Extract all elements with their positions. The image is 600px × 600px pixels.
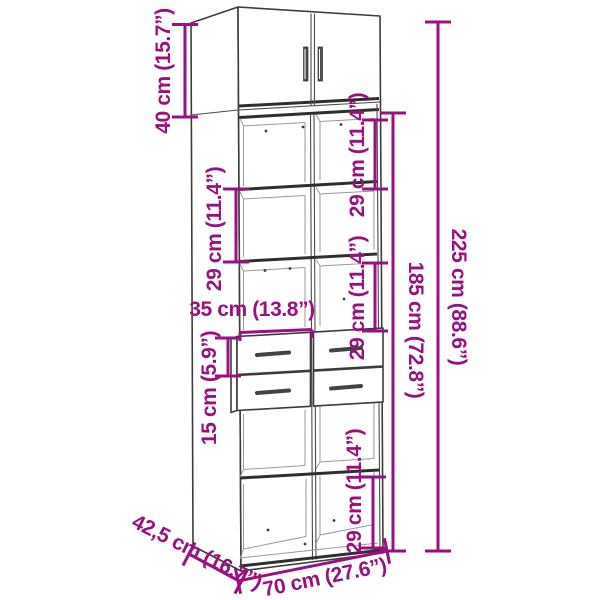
- left-door-handle: [304, 47, 309, 81]
- dim-shelf-right-lower-label: 29 cm (11.4”): [343, 429, 366, 553]
- dim-drawer-height-label: 15 cm (5.9”): [198, 331, 221, 445]
- dim-total-height-label: 225 cm (88.6”): [447, 229, 470, 366]
- dim-shelf-right-upper-label: 29 cm (11.4”): [346, 93, 369, 217]
- right-door-handle: [318, 47, 323, 81]
- drawer-handle: [331, 386, 361, 389]
- dim-total-height: 225 cm (88.6”): [425, 22, 470, 551]
- dim-shelf-right-middle-label: 29 cm (11.4”): [346, 236, 369, 360]
- dim-shelf-left-label: 29 cm (11.4”): [203, 167, 226, 291]
- product-dimension-diagram: 40 cm (15.7”) 29 cm (11.4”) 29 cm (11.4”…: [0, 0, 600, 600]
- drawer-handle: [257, 391, 289, 394]
- dim-body-height-label: 185 cm (72.8”): [404, 262, 427, 399]
- cabinet-diagram-canvas: 40 cm (15.7”) 29 cm (11.4”) 29 cm (11.4”…: [0, 0, 600, 600]
- dim-half-width-label: 35 cm (13.8”): [189, 298, 315, 321]
- drawer-handle: [257, 353, 289, 356]
- dim-top-height-label: 40 cm (15.7”): [152, 8, 175, 134]
